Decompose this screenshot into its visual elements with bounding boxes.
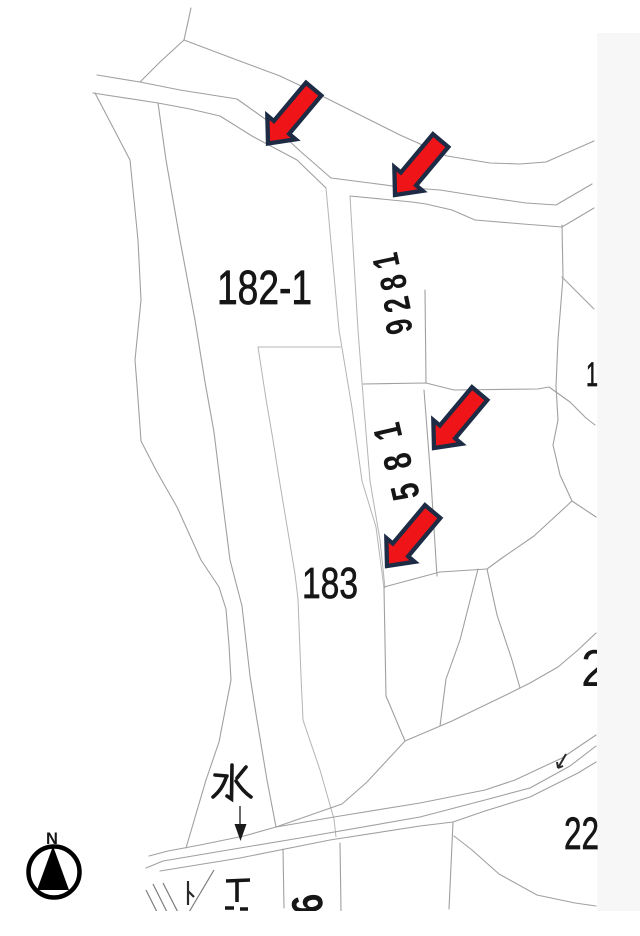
svg-text:182-1: 182-1	[217, 262, 312, 315]
svg-text:1: 1	[586, 356, 598, 394]
svg-text:N: N	[46, 830, 58, 848]
svg-text:22: 22	[564, 808, 599, 859]
svg-text:183: 183	[302, 559, 358, 608]
